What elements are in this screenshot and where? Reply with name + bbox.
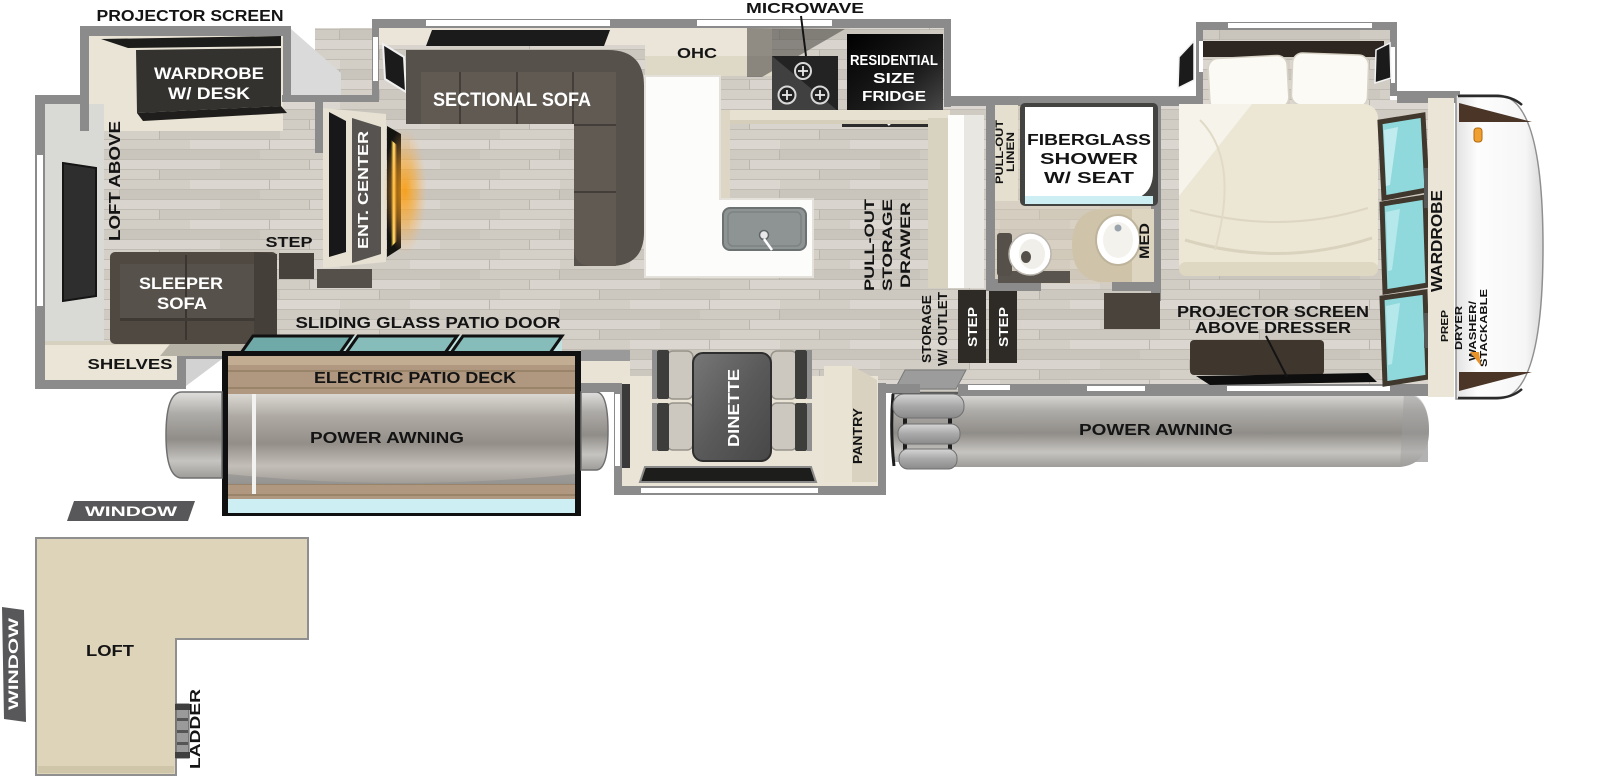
svg-text:SLEEPER: SLEEPER (139, 274, 223, 293)
svg-text:WARDROBE: WARDROBE (1429, 190, 1446, 292)
svg-text:PROJECTOR SCREEN: PROJECTOR SCREEN (97, 8, 284, 25)
svg-text:STEP: STEP (965, 307, 980, 347)
svg-text:LINEN: LINEN (1005, 132, 1017, 172)
svg-text:PULL-OUT: PULL-OUT (861, 198, 877, 291)
svg-text:FIBERGLASS: FIBERGLASS (1027, 132, 1151, 149)
svg-text:MICROWAVE: MICROWAVE (746, 0, 864, 17)
svg-text:WARDROBE: WARDROBE (154, 64, 264, 83)
svg-text:WINDOW: WINDOW (85, 503, 178, 519)
svg-text:SIZE: SIZE (873, 71, 915, 87)
svg-text:DINETTE: DINETTE (726, 369, 743, 447)
svg-text:ENT. CENTER: ENT. CENTER (355, 131, 372, 249)
svg-text:PANTRY: PANTRY (850, 408, 865, 464)
svg-text:RESIDENTIAL: RESIDENTIAL (850, 53, 938, 69)
svg-text:WINDOW: WINDOW (5, 617, 21, 710)
svg-text:FRIDGE: FRIDGE (862, 89, 926, 105)
svg-text:STEP: STEP (266, 234, 313, 251)
svg-text:SECTIONAL SOFA: SECTIONAL SOFA (433, 90, 591, 111)
svg-text:STACKABLE: STACKABLE (1478, 289, 1490, 367)
svg-text:SOFA: SOFA (157, 294, 207, 313)
svg-text:W/ OUTLET: W/ OUTLET (936, 292, 950, 366)
svg-text:OHC: OHC (677, 45, 717, 62)
svg-text:LOFT: LOFT (86, 643, 134, 660)
svg-text:LADDER: LADDER (187, 689, 204, 769)
svg-text:W/ SEAT: W/ SEAT (1044, 170, 1135, 187)
svg-text:PREP: PREP (1439, 310, 1451, 342)
svg-text:W/ DESK: W/ DESK (168, 84, 251, 103)
svg-text:DRAWER: DRAWER (897, 202, 913, 288)
svg-text:SLIDING GLASS PATIO DOOR: SLIDING GLASS PATIO DOOR (296, 315, 562, 332)
svg-text:DRYER: DRYER (1453, 306, 1465, 350)
svg-text:SHELVES: SHELVES (88, 356, 173, 373)
svg-text:SHOWER: SHOWER (1040, 151, 1138, 168)
svg-text:STEP: STEP (996, 307, 1011, 347)
svg-text:STORAGE: STORAGE (879, 199, 895, 291)
svg-text:MED: MED (1137, 223, 1152, 259)
svg-text:PROJECTOR SCREEN: PROJECTOR SCREEN (1177, 304, 1369, 321)
svg-text:ABOVE DRESSER: ABOVE DRESSER (1195, 320, 1351, 337)
svg-text:POWER AWNING: POWER AWNING (310, 430, 464, 447)
svg-text:STORAGE: STORAGE (920, 295, 934, 363)
svg-text:POWER AWNING: POWER AWNING (1079, 422, 1233, 439)
svg-text:ELECTRIC PATIO DECK: ELECTRIC PATIO DECK (314, 370, 516, 387)
svg-text:WASHER/: WASHER/ (1467, 301, 1479, 361)
svg-text:LOFT ABOVE: LOFT ABOVE (107, 121, 124, 241)
